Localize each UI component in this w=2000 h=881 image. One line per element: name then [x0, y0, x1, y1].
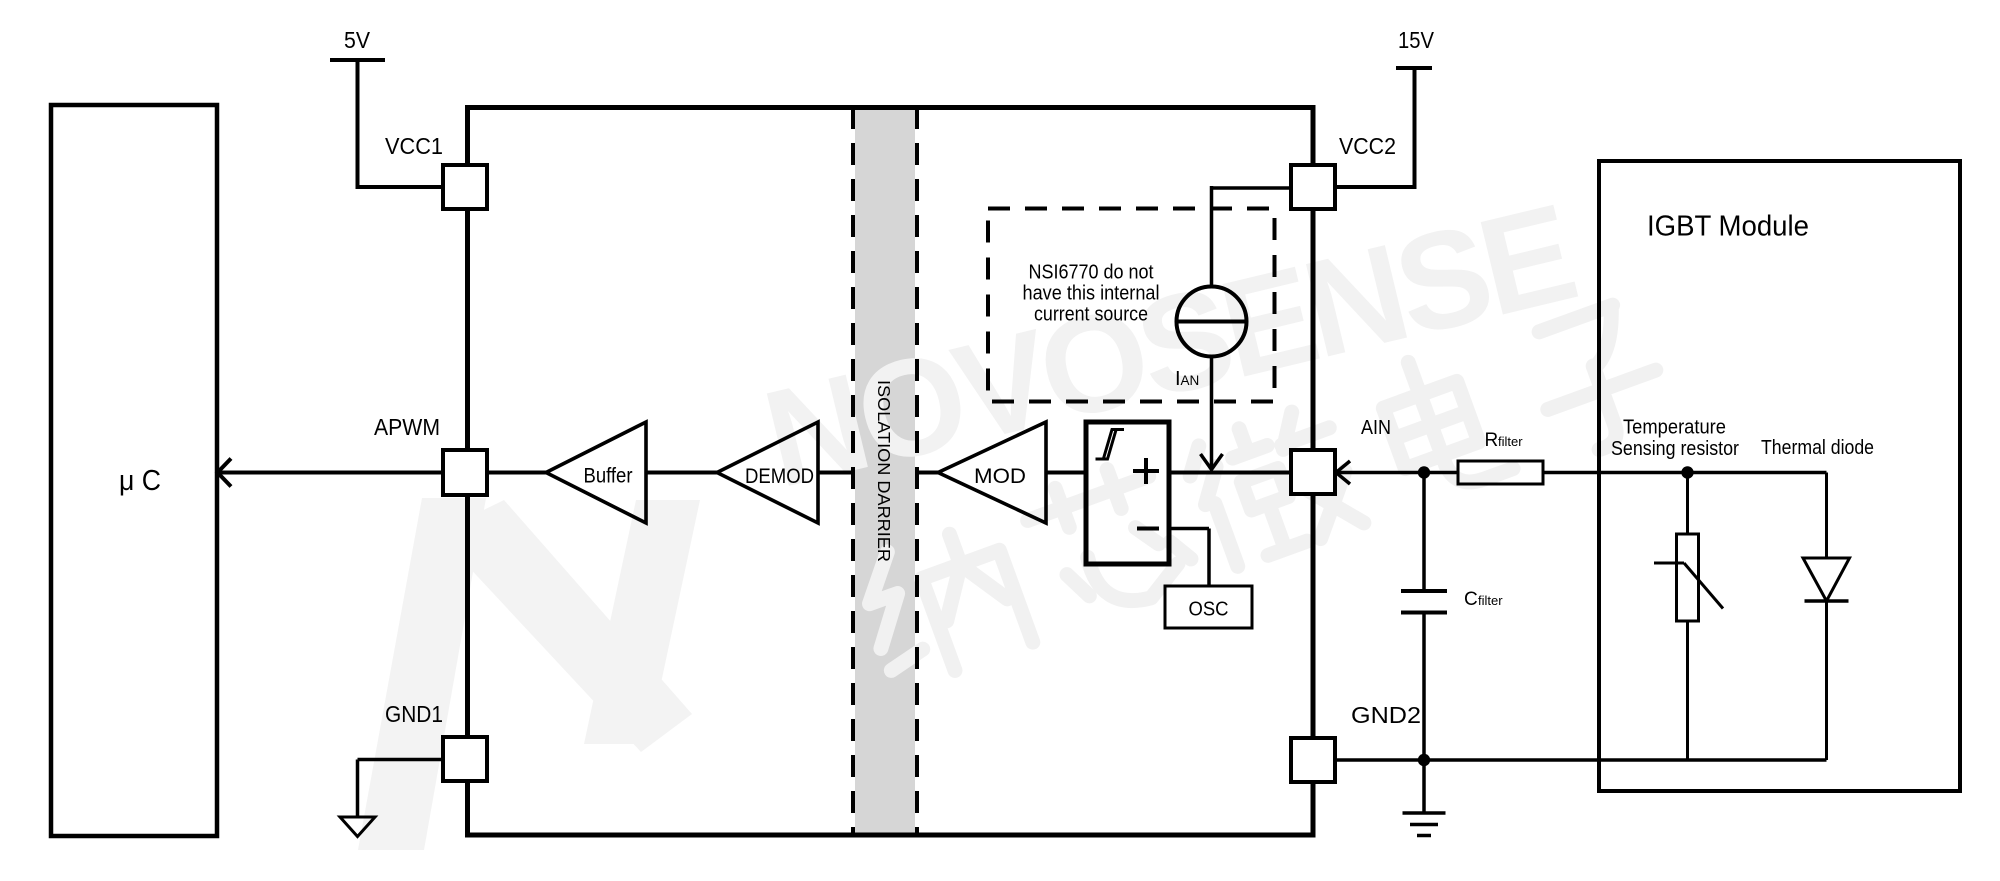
svg-text:5V: 5V — [344, 27, 371, 53]
svg-text:GND1: GND1 — [385, 701, 443, 727]
svg-text:C: C — [1464, 589, 1478, 610]
svg-text:have this internal: have this internal — [1023, 283, 1160, 305]
svg-text:AIN: AIN — [1361, 417, 1391, 439]
svg-text:AN: AN — [1181, 373, 1200, 388]
svg-text:filter: filter — [1478, 593, 1503, 608]
svg-text:GND2: GND2 — [1351, 702, 1421, 728]
svg-text:R: R — [1485, 430, 1499, 451]
svg-text:μ C: μ C — [119, 465, 161, 497]
svg-text:Thermal diode: Thermal diode — [1761, 437, 1874, 459]
svg-text:Sensing resistor: Sensing resistor — [1611, 438, 1739, 460]
svg-text:VCC1: VCC1 — [385, 133, 443, 159]
svg-text:APWM: APWM — [374, 414, 440, 440]
svg-text:VCC2: VCC2 — [1339, 133, 1396, 159]
svg-text:NSI6770 do not: NSI6770 do not — [1029, 262, 1154, 284]
svg-text:current source: current source — [1034, 304, 1148, 326]
svg-text:ISOLATION DARRIER: ISOLATION DARRIER — [874, 380, 894, 562]
svg-text:OSC: OSC — [1189, 599, 1229, 621]
svg-text:IGBT Module: IGBT Module — [1647, 211, 1809, 243]
svg-text:DEMOD: DEMOD — [745, 465, 814, 488]
svg-text:filter: filter — [1498, 434, 1523, 449]
svg-text:Buffer: Buffer — [584, 465, 633, 488]
svg-text:MOD: MOD — [974, 465, 1026, 488]
svg-text:Temperature: Temperature — [1623, 417, 1726, 439]
svg-text:15V: 15V — [1398, 27, 1435, 53]
